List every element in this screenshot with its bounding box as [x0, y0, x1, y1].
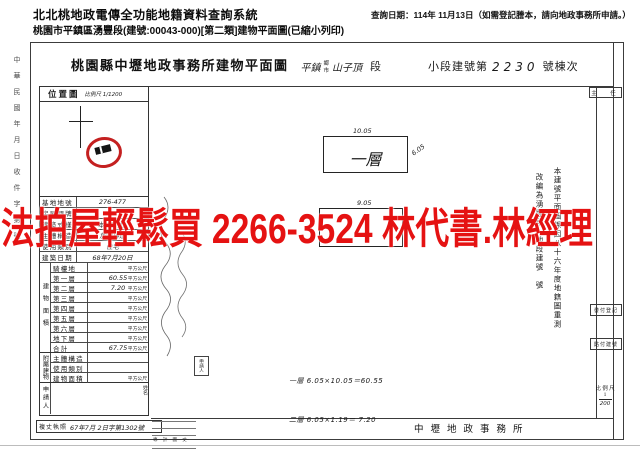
- row-label: 騎樓地: [51, 263, 88, 272]
- row-unit: 平方公尺: [128, 265, 147, 272]
- row-label: 第四層: [51, 303, 88, 312]
- doc-subtitle: 桃園市平鎮區湧豐段(建號:00043-000)[第二類]建物平面圖(已縮小列印): [33, 22, 344, 37]
- row-label: 第五層: [51, 313, 88, 322]
- location-map-header: 位置圖 比例尺 1/1200: [40, 87, 148, 102]
- applicant-group: 申請人 姓名: [40, 383, 148, 414]
- floor-row: 第六層 平方公尺: [51, 323, 148, 333]
- section-handwritten: 山子頂: [332, 59, 362, 74]
- row-unit: 平方公尺: [128, 275, 147, 282]
- floor-row: 第一層 60.55 平方公尺: [51, 273, 148, 283]
- row-label: 合計: [51, 343, 88, 353]
- row-unit: 平方公尺: [128, 315, 147, 322]
- township-handwritten: 平鎮: [301, 59, 321, 74]
- row-unit: 平方公尺: [128, 375, 147, 382]
- floor-row: 第五層 平方公尺: [51, 313, 148, 323]
- floor-area-group: 建物面積 騎樓地 平方公尺 第一層 60.55 平方公尺 第二層 7.20: [40, 263, 148, 353]
- floor-row: 第四層 平方公尺: [51, 303, 148, 313]
- floor-row: 地下層 平方公尺: [51, 333, 148, 343]
- row-label: 建物面積: [51, 373, 88, 383]
- calc-line: 一層 6.05×10.05＝60.55: [289, 375, 383, 388]
- building-no-handwritten: 2230: [492, 60, 539, 74]
- floor-row: 騎樓地 平方公尺: [51, 263, 148, 273]
- query-date: 查詢日期：114年 11月13日（如需登記謄本，請向地政事務所申請。）: [371, 9, 631, 21]
- row-unit: 平方公尺: [128, 335, 147, 342]
- attached-group-label: 附屬建物: [40, 353, 51, 382]
- ad-watermark-text: 法拍屋輕鬆買 2266-3524 林代書.林經理: [1, 195, 593, 256]
- row-label: 主體構造: [51, 353, 88, 362]
- attached-building-group: 附屬建物 主體構造 使用類別 建物面積 平方公: [40, 353, 148, 383]
- form-top-line: [149, 86, 613, 87]
- app-title: 北北桃地政電傳全功能地籍資料查詢系統: [33, 6, 258, 23]
- row-label: 使用類別: [51, 363, 88, 372]
- unit-city: 市: [324, 68, 330, 75]
- right-margin-line: [613, 43, 614, 439]
- screen: 北北桃地政電傳全功能地籍資料查詢系統 查詢日期：114年 11月13日（如需登記…: [0, 0, 640, 453]
- floor1-inner-label: 一層: [324, 146, 407, 170]
- floor1-top-dimension: 10.05: [353, 127, 372, 135]
- row-unit: 平方公尺: [128, 345, 147, 352]
- map-cross-tick-icon: [69, 121, 93, 122]
- township-unit-labels: 鄉 市: [324, 61, 330, 74]
- floor1-outline: 一層: [323, 136, 408, 173]
- attach-building-no-stamp: 貼付建號: [590, 338, 622, 350]
- location-map-scale: 比例尺 1/1200: [85, 90, 123, 98]
- signature-line: [152, 448, 196, 449]
- signature-line: [152, 421, 196, 422]
- bottom-divider: [0, 445, 640, 446]
- floor-area-group-label: 建物面積: [40, 263, 51, 352]
- attached-row: 使用類別: [51, 363, 148, 373]
- location-map: [40, 102, 148, 197]
- signature-line: [152, 428, 196, 429]
- row-label: 第二層: [51, 283, 88, 292]
- drawing-scale: 比 例 尺 1 200: [589, 384, 621, 407]
- survey-license-strip: 複丈執照 67年7月 2日字第1302號: [36, 420, 162, 433]
- row-unit: 平方公尺: [128, 285, 147, 292]
- document-title-row: 桃園縣中壢地政事務所建物平面圖 平鎮 鄉 市 山子頂 段 小段建號第 2230 …: [71, 55, 579, 74]
- row-unit: 平方公尺: [128, 325, 147, 332]
- floor1-right-dimension: 6.05: [410, 143, 426, 158]
- document-title: 桃園縣中壢地政事務所建物平面圖: [71, 55, 289, 74]
- scale-fraction-bar: [599, 399, 612, 400]
- row-label: 地下層: [51, 333, 88, 342]
- survey-value: 67年7月 2日字第1302號: [70, 422, 144, 432]
- right-strip-line: [596, 86, 597, 418]
- calc-line: 二層 6.05×1.19＝ 7.20: [289, 414, 383, 427]
- area-calculation-notes: 一層 6.05×10.05＝60.55 二層 6.05×1.19＝ 7.20 計…: [289, 349, 383, 453]
- floor-row: 第三層 平方公尺: [51, 293, 148, 303]
- attached-row: 建物面積 平方公尺: [51, 373, 148, 383]
- applicant-group-label: 申請人: [40, 383, 51, 414]
- scale-label: 比 例 尺: [589, 384, 621, 392]
- row-label: 第三層: [51, 293, 88, 302]
- floor-row: 合計 67.75 平方公尺: [51, 343, 148, 353]
- signature-line: [152, 435, 196, 436]
- issue-registration-stamp: 發付登記: [590, 304, 622, 316]
- row-label: 第六層: [51, 323, 88, 332]
- building-no-suffix: 號棟次: [543, 58, 579, 74]
- location-map-label: 位置圖: [48, 88, 80, 100]
- row-unit: 平方公尺: [128, 295, 147, 302]
- applicant-stamp-box: 申請人: [194, 356, 209, 376]
- scale-numerator: 1: [589, 392, 621, 398]
- map-cross-icon: [80, 106, 81, 148]
- signature-fragment-text: 專 計 圖 丈: [153, 437, 189, 443]
- survey-label: 複丈執照: [39, 422, 67, 431]
- attached-row: 主體構造: [51, 353, 148, 363]
- row-unit: 平方公尺: [128, 305, 147, 312]
- office-footer: 中壢地政事務所: [414, 421, 530, 435]
- floor-row: 第二層 7.20 平方公尺: [51, 283, 148, 293]
- applicant-name-label: 姓名: [53, 385, 148, 395]
- section-suffix: 段: [370, 58, 382, 74]
- building-no-prefix: 小段建號第: [428, 58, 488, 74]
- scale-denominator: 200: [589, 401, 621, 407]
- row-label: 第一層: [51, 273, 88, 282]
- chief-approval-box: 主 任: [589, 87, 622, 98]
